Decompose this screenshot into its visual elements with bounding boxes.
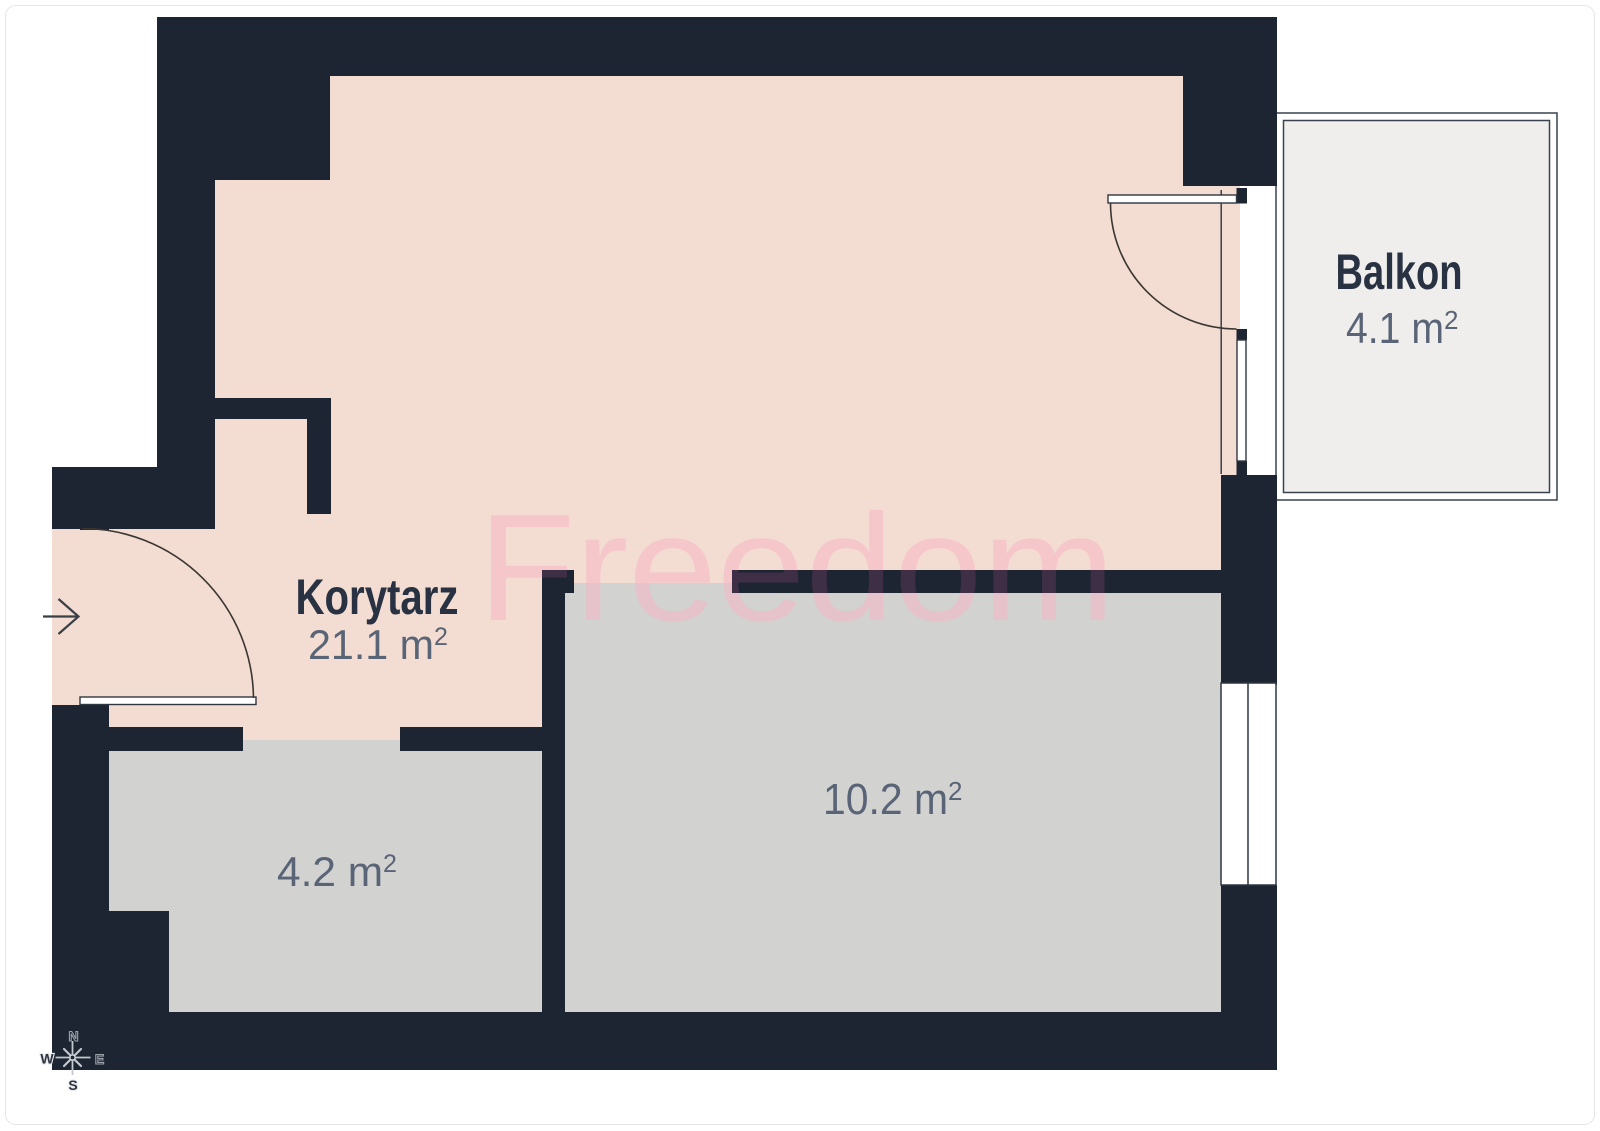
svg-text:21.1 m2: 21.1 m2 (308, 621, 448, 668)
svg-text:Balkon: Balkon (1336, 244, 1463, 300)
svg-text:4.2 m2: 4.2 m2 (277, 848, 397, 895)
svg-text:W: W (40, 1051, 54, 1067)
svg-text:Korytarz: Korytarz (296, 569, 459, 625)
svg-text:N: N (68, 1028, 78, 1044)
svg-text:Freedom: Freedom (478, 483, 1115, 653)
svg-text:S: S (68, 1077, 77, 1093)
svg-text:4.1 m2: 4.1 m2 (1346, 304, 1458, 353)
svg-text:10.2 m2: 10.2 m2 (823, 775, 962, 824)
svg-text:E: E (95, 1051, 104, 1067)
